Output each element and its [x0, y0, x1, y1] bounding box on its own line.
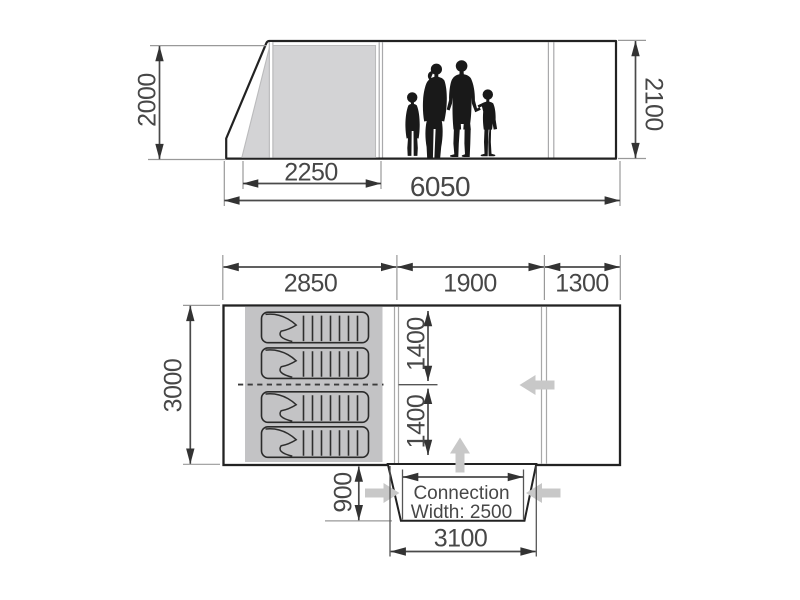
- svg-text:2250: 2250: [284, 159, 338, 187]
- svg-text:900: 900: [330, 472, 358, 512]
- svg-text:3100: 3100: [434, 525, 488, 553]
- svg-text:1900: 1900: [443, 270, 497, 298]
- svg-text:3000: 3000: [160, 359, 188, 413]
- svg-text:2850: 2850: [284, 270, 338, 298]
- svg-text:1300: 1300: [555, 270, 609, 298]
- svg-text:Width: 2500: Width: 2500: [411, 502, 512, 523]
- svg-text:1400: 1400: [403, 317, 431, 371]
- svg-text:1400: 1400: [403, 395, 431, 449]
- svg-text:2100: 2100: [640, 77, 668, 131]
- svg-text:Connection: Connection: [413, 483, 509, 504]
- svg-text:2000: 2000: [133, 73, 161, 127]
- svg-text:6050: 6050: [410, 171, 470, 202]
